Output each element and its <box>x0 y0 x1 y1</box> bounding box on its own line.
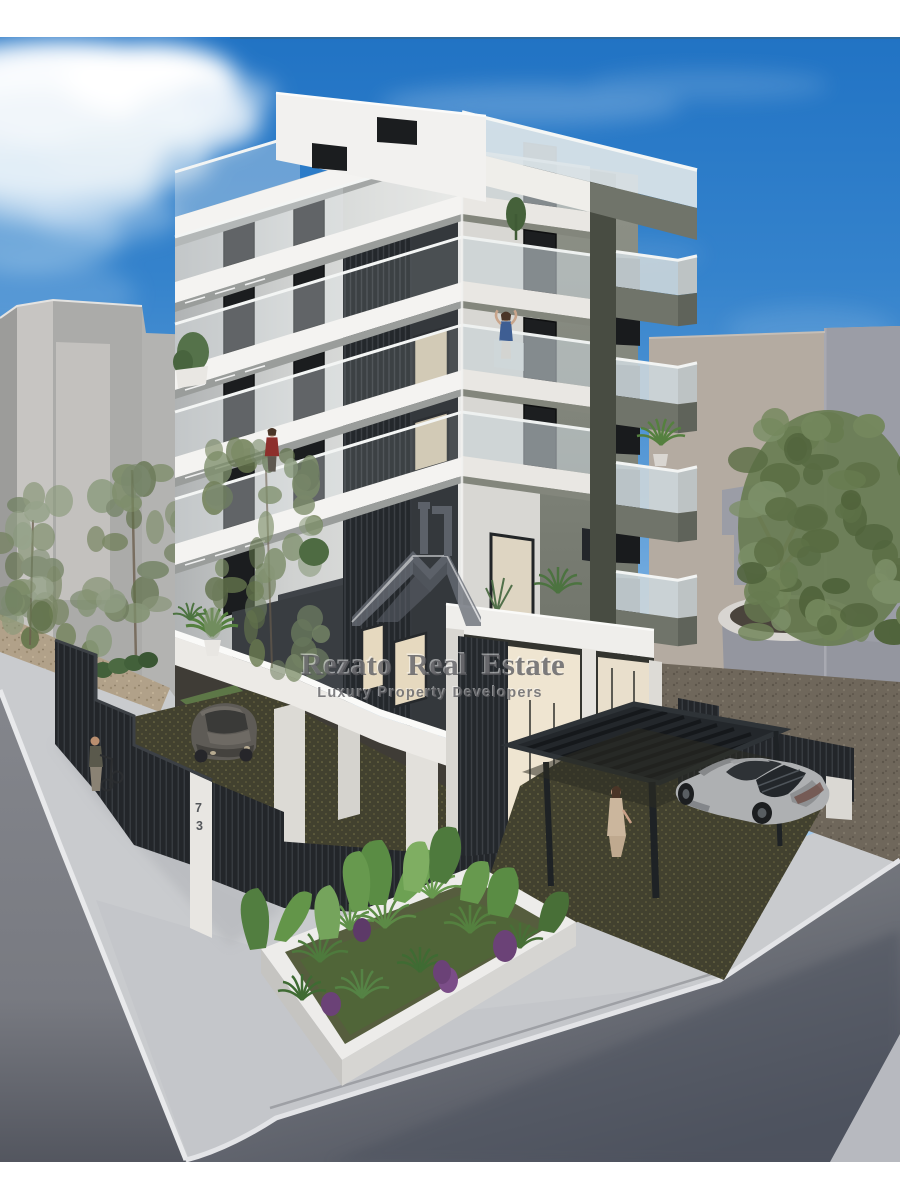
svg-text:3: 3 <box>196 819 203 833</box>
svg-text:Luxury Property Developers: Luxury Property Developers <box>317 685 542 701</box>
svg-text:7: 7 <box>195 801 202 815</box>
svg-text:Rezato Real Estate: Rezato Real Estate <box>301 647 565 682</box>
